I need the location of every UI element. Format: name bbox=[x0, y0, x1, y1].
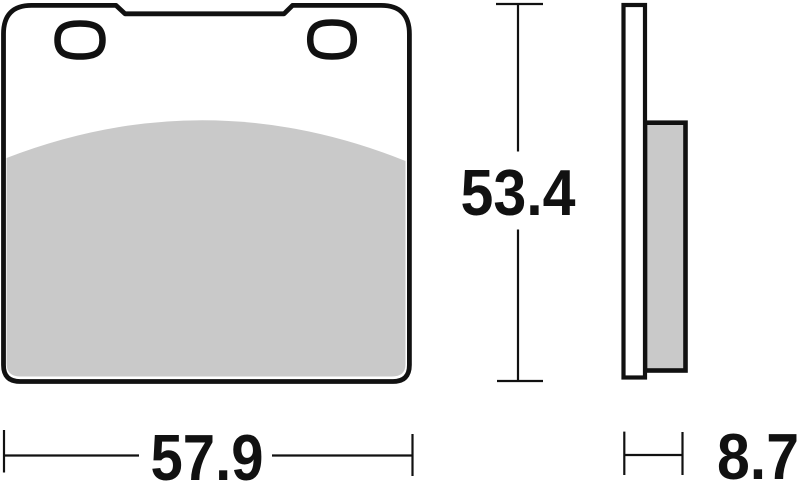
svg-text:53.4: 53.4 bbox=[461, 156, 576, 229]
svg-text:8.7: 8.7 bbox=[717, 420, 799, 481]
svg-text:57.9: 57.9 bbox=[151, 421, 264, 481]
